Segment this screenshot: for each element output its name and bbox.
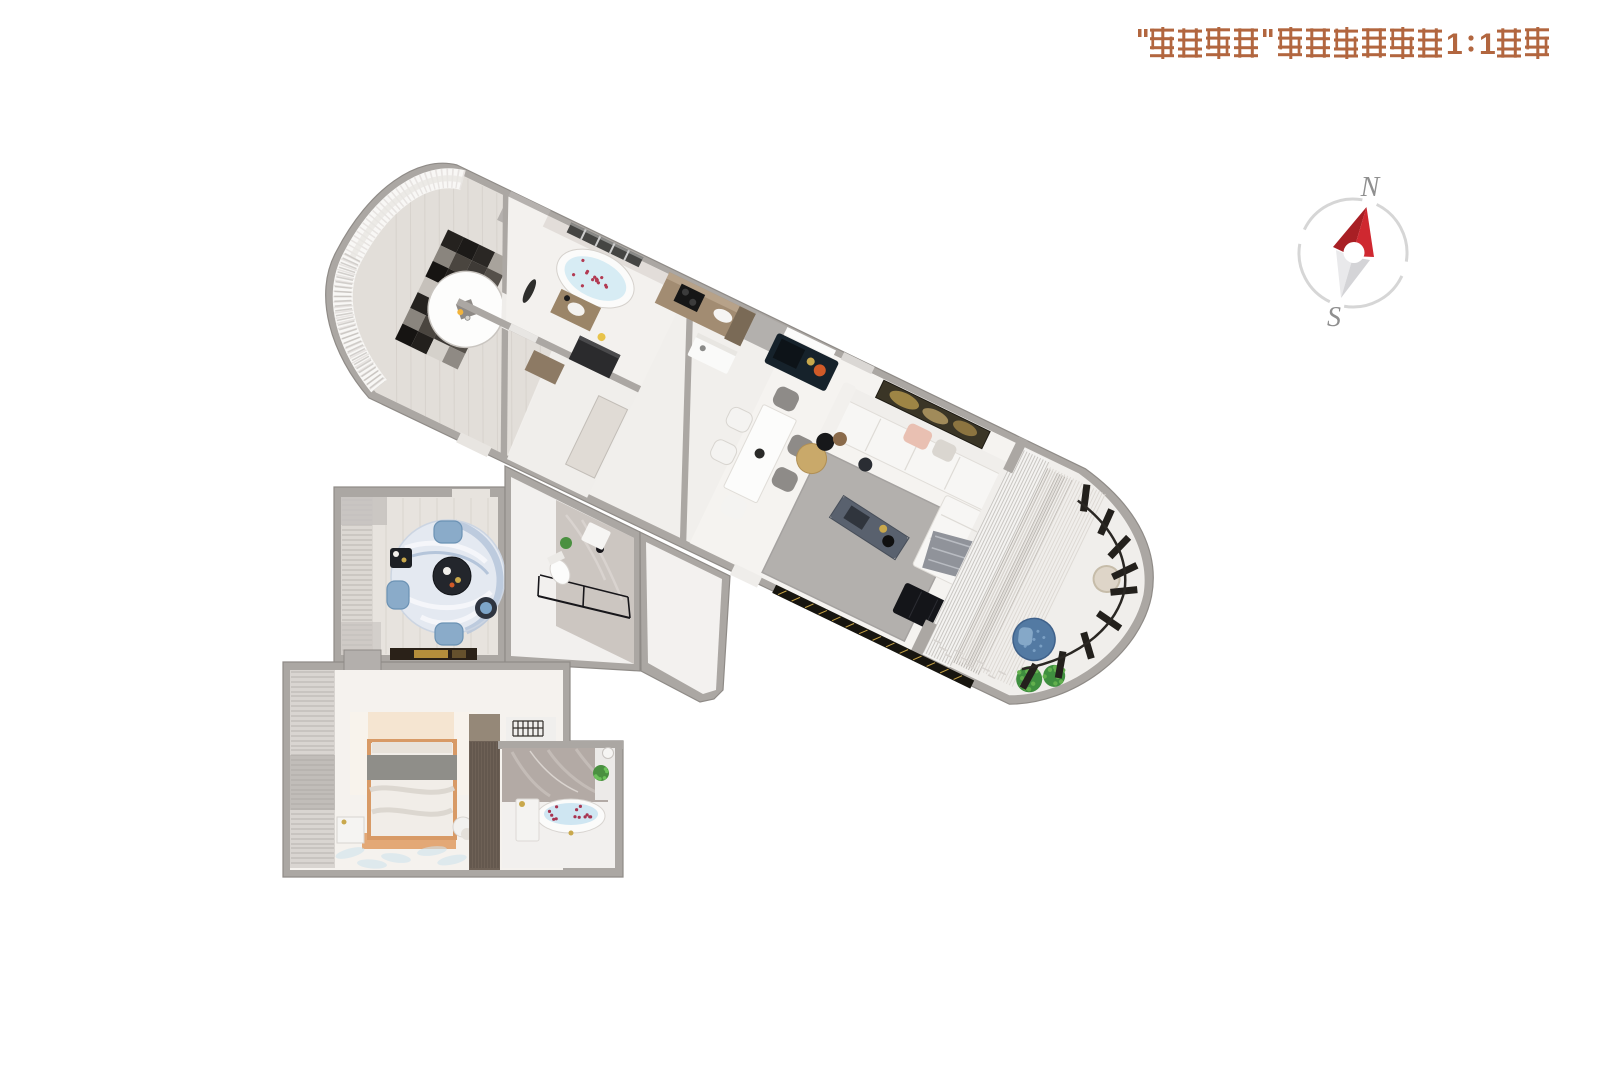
svg-text:1: 1 [1446, 28, 1463, 61]
svg-text:S: S [1327, 302, 1341, 333]
svg-text:1: 1 [1479, 28, 1496, 61]
svg-text:N: N [1360, 172, 1381, 203]
